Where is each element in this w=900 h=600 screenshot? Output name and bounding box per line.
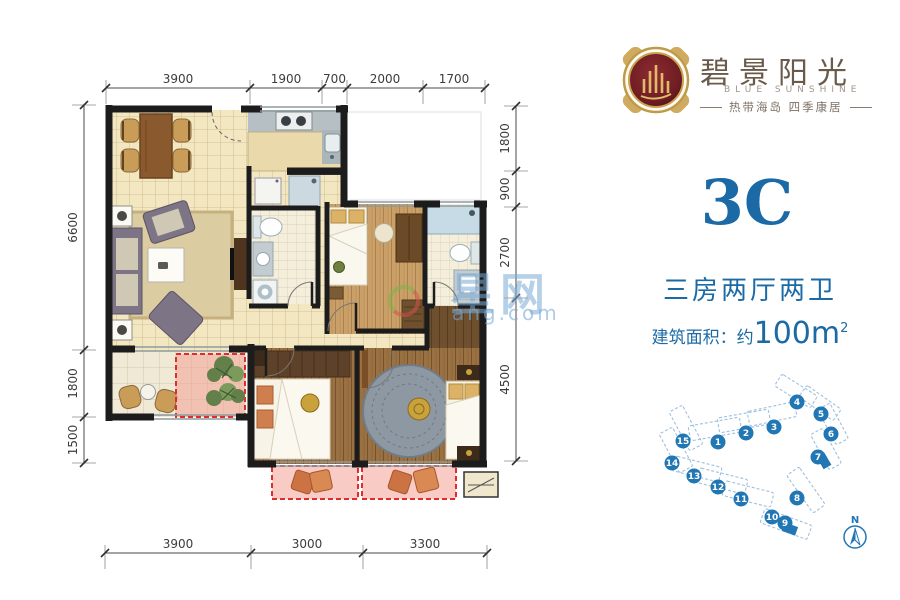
dim-label: 2000 [370, 72, 401, 86]
area-prefix: 建筑面积：约 [652, 323, 754, 348]
garden-highlight [176, 354, 245, 417]
dim-label: 900 [498, 178, 512, 201]
site-unit-number: 7 [815, 453, 821, 463]
brand-tagline: 热带海岛 四季康居 [700, 99, 872, 115]
compass-needle-right [855, 528, 860, 545]
site-unit-number: 10 [766, 513, 779, 523]
tagline-text: 热带海岛 四季康居 [729, 99, 843, 115]
site-unit-number: 13 [688, 472, 701, 482]
dim-label: 3900 [163, 537, 194, 551]
brand-name-en: BLUE SUNSHINE [724, 85, 861, 95]
unit-area: 建筑面积：约100m2 [635, 316, 865, 351]
desk-chair [375, 224, 394, 243]
dim-label: 1500 [66, 425, 80, 456]
area-value: 100m [754, 316, 840, 351]
dim-label: 1900 [271, 72, 302, 86]
dim-label: 6600 [66, 212, 80, 243]
brand-medallion-icon [620, 44, 692, 116]
unit-rooms: 三房两厅两卫 [640, 270, 860, 307]
building-notch-outline [347, 112, 481, 200]
site-unit-number: 4 [794, 398, 800, 408]
compass-needle-left [850, 528, 855, 545]
door-leaf-bd2 [362, 350, 368, 388]
site-unit-number: 6 [828, 430, 834, 440]
floorplan-page: 3900190070020001700660018001500180090027… [0, 0, 900, 600]
dim-label: 1800 [66, 368, 80, 399]
tagline-dash-left [700, 107, 722, 108]
unit-code: 3C [647, 166, 847, 239]
site-unit-number: 15 [677, 437, 690, 447]
watermark-domain: ang.com [452, 301, 560, 325]
site-unit-number: 9 [782, 519, 788, 529]
site-plan: 123456789101112131415N [659, 374, 866, 548]
dim-label: 3900 [163, 72, 194, 86]
tv [230, 248, 234, 280]
site-unit-number: 2 [743, 429, 749, 439]
dim-label: 700 [323, 72, 346, 86]
dim-label: 1700 [439, 72, 470, 86]
site-unit-number: 14 [666, 459, 679, 469]
site-building-outline [787, 467, 826, 513]
area-sup: 2 [840, 321, 848, 336]
site-unit-number: 11 [735, 495, 748, 505]
site-unit-number: 8 [794, 494, 800, 504]
shower-stall [289, 176, 320, 207]
kitchen-counter [248, 110, 344, 175]
dim-label: 3000 [292, 537, 323, 551]
watermark-logo-icon [388, 285, 420, 317]
compass-label: N [851, 515, 859, 526]
round-table [408, 398, 430, 420]
site-unit-number: 3 [771, 423, 777, 433]
fridge [255, 178, 281, 204]
dim-label: 4500 [498, 364, 512, 395]
ac-platform [464, 472, 498, 497]
tv-cabinet [234, 238, 247, 290]
tagline-dash-right [850, 107, 872, 108]
dim-label: 1800 [498, 123, 512, 154]
dim-label: 3300 [410, 537, 441, 551]
site-unit-number: 1 [715, 438, 721, 448]
site-building-outline [722, 481, 774, 508]
site-unit-number: 5 [818, 410, 824, 420]
site-unit-number: 12 [712, 483, 725, 493]
